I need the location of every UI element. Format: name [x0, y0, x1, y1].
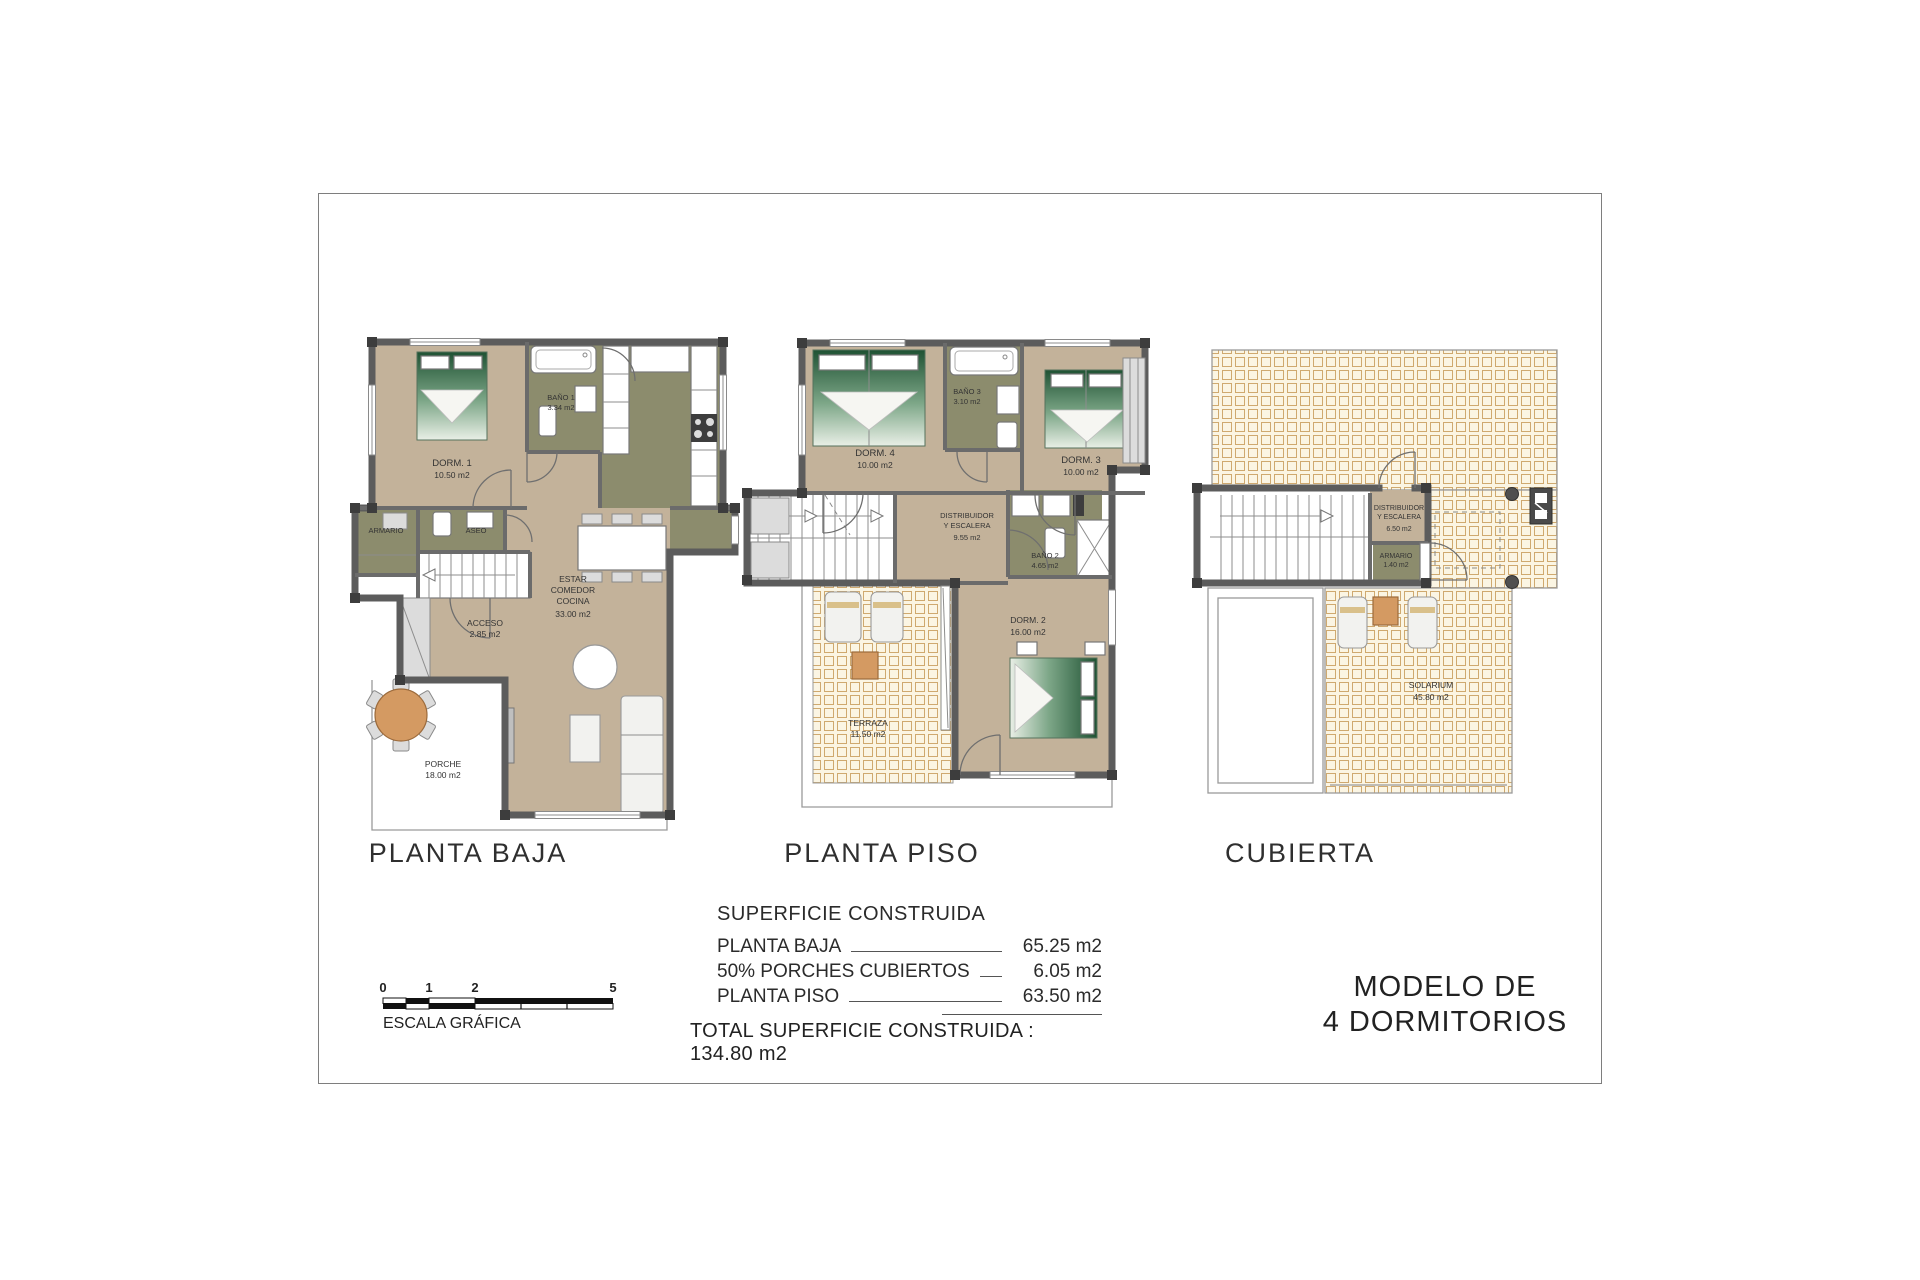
- plan-title-planta-piso: PLANTA PISO: [762, 838, 1002, 869]
- room-label-aseo: ASEO: [466, 526, 487, 535]
- surface-row-label: 50% PORCHES CUBIERTOS: [717, 961, 970, 983]
- side-table-icon: [852, 652, 878, 679]
- leader-line: [851, 950, 1002, 952]
- room-label-armario: ARMARIO: [368, 526, 403, 535]
- plan-cubierta: DISTRIBUIDOR Y ESCALERA 6.50 m2 ARMARIO …: [1195, 330, 1615, 850]
- sun-lounger: [1338, 597, 1367, 648]
- svg-text:6.50 m2: 6.50 m2: [1386, 526, 1411, 533]
- leader-line: [849, 1000, 1002, 1002]
- scale-tick-1: 1: [425, 980, 432, 995]
- vent-icon: [1506, 488, 1519, 501]
- svg-text:Y ESCALERA: Y ESCALERA: [944, 521, 991, 530]
- svg-text:COCINA: COCINA: [556, 596, 589, 606]
- surface-row-value: 6.05 m2: [1010, 961, 1102, 983]
- coffee-table: [570, 715, 600, 762]
- room-label-bano1: BAÑO 1: [547, 393, 575, 402]
- sofa: [621, 696, 663, 814]
- scale-tick-0: 0: [379, 980, 386, 995]
- svg-text:18.00 m2: 18.00 m2: [425, 770, 461, 780]
- svg-text:9.55 m2: 9.55 m2: [953, 533, 980, 542]
- bano1-sink: [575, 386, 596, 412]
- svg-text:1.40 m2: 1.40 m2: [1383, 562, 1408, 569]
- svg-text:3.34 m2: 3.34 m2: [547, 403, 574, 412]
- svg-text:4.65 m2: 4.65 m2: [1031, 561, 1058, 570]
- room-label-dorm2: DORM. 2: [1010, 615, 1046, 625]
- lounger-stripe: [827, 602, 859, 608]
- round-table-icon: [375, 689, 427, 741]
- plan-planta-baja: DORM. 1 10.50 m2 BAÑO 1 3.34 m2 ARMARIO …: [355, 330, 775, 850]
- room-label-armario: ARMARIO: [1380, 553, 1413, 560]
- surface-total: TOTAL SUPERFICIE CONSTRUIDA : 134.80 m2: [690, 1020, 1102, 1066]
- porch-table-set: [366, 679, 436, 751]
- svg-text:Y ESCALERA: Y ESCALERA: [1377, 514, 1421, 521]
- room-label-estar: ESTAR: [559, 574, 587, 584]
- floorplan-sheet: DORM. 1 10.50 m2 BAÑO 1 3.34 m2 ARMARIO …: [0, 0, 1920, 1280]
- svg-text:COMEDOR: COMEDOR: [551, 585, 595, 595]
- room-jog-floor: [670, 508, 735, 552]
- svg-text:3.10 m2: 3.10 m2: [953, 397, 980, 406]
- surface-table: SUPERFICIE CONSTRUIDA PLANTA BAJA 65.25 …: [690, 903, 1102, 1066]
- scale-tick-2: 2: [471, 980, 478, 995]
- dining-set: [578, 514, 666, 582]
- surface-row-value: 63.50 m2: [1010, 986, 1102, 1008]
- bedside-table: [1085, 642, 1105, 655]
- room-label-dorm1: DORM. 1: [432, 458, 472, 469]
- stove-icon: [691, 414, 717, 442]
- entry-steps: [400, 598, 430, 680]
- dorm1-bed: [417, 352, 487, 440]
- scale-tick-5: 5: [609, 980, 616, 995]
- svg-text:10.50 m2: 10.50 m2: [434, 470, 470, 480]
- room-label-dorm3: DORM. 3: [1061, 455, 1101, 466]
- svg-text:10.00 m2: 10.00 m2: [857, 460, 893, 470]
- plan-planta-piso: DORM. 4 10.00 m2 BAÑO 3 3.10 m2 DORM. 3 …: [745, 330, 1165, 850]
- side-table-icon: [1373, 597, 1398, 625]
- vent-icon: [1506, 576, 1519, 589]
- room-label-porche: PORCHE: [425, 759, 462, 769]
- bano2-sink: [1043, 495, 1070, 516]
- plan-title-cubierta: CUBIERTA: [1180, 838, 1420, 869]
- scale-label: ESCALA GRÁFICA: [383, 1013, 521, 1032]
- leader-line: [980, 975, 1002, 977]
- graphic-scale: 0 1 2 5 ESCALA GRÁFICA: [378, 980, 628, 1043]
- surface-row-value: 65.25 m2: [1010, 936, 1102, 958]
- scale-bar: [383, 998, 613, 1009]
- svg-text:2.85 m2: 2.85 m2: [470, 629, 501, 639]
- room-label-distribuidor: DISTRIBUIDOR: [1374, 505, 1424, 512]
- surface-row-label: PLANTA PISO: [717, 986, 839, 1008]
- sun-lounger: [871, 592, 903, 642]
- sun-lounger: [1408, 597, 1437, 648]
- room-label-dorm4: DORM. 4: [855, 448, 895, 459]
- surface-table-title: SUPERFICIE CONSTRUIDA: [717, 903, 1102, 926]
- sum-line: [942, 1014, 1102, 1015]
- armario-door-leaf: [1420, 543, 1430, 580]
- svg-text:11.50 m2: 11.50 m2: [851, 729, 886, 739]
- svg-text:10.00 m2: 10.00 m2: [1063, 467, 1099, 477]
- surface-row-porches: 50% PORCHES CUBIERTOS 6.05 m2: [717, 961, 1102, 986]
- round-rug: [573, 645, 617, 689]
- dorm4-bed: [813, 350, 925, 446]
- model-caption-line2: 4 DORMITORIOS: [1300, 1005, 1590, 1040]
- room-label-bano3: BAÑO 3: [953, 387, 981, 396]
- lower-roof-void: [1208, 588, 1323, 793]
- aseo-toilet: [433, 512, 451, 536]
- surface-row-label: PLANTA BAJA: [717, 936, 841, 958]
- plan-title-planta-baja: PLANTA BAJA: [348, 838, 588, 869]
- model-caption: MODELO DE 4 DORMITORIOS: [1300, 970, 1590, 1040]
- dorm3-bed: [1045, 370, 1127, 448]
- room-label-solarium: SOLARIUM: [1409, 680, 1453, 690]
- surface-row-planta-baja: PLANTA BAJA 65.25 m2: [717, 936, 1102, 961]
- room-label-bano2: BAÑO 2: [1031, 551, 1059, 560]
- svg-text:45.80 m2: 45.80 m2: [1413, 692, 1449, 702]
- distribuidor-floor: [895, 493, 1008, 583]
- room-label-terraza: TERRAZA: [848, 718, 888, 728]
- room-label-distribuidor: DISTRIBUIDOR: [940, 511, 994, 520]
- sun-lounger: [825, 592, 861, 642]
- room-label-acceso: ACCESO: [467, 618, 503, 628]
- svg-text:16.00 m2: 16.00 m2: [1010, 627, 1046, 637]
- bedside-table: [1017, 642, 1037, 655]
- chimney-icon: [1530, 488, 1552, 524]
- surface-row-planta-piso: PLANTA PISO 63.50 m2: [717, 986, 1102, 1011]
- model-caption-line1: MODELO DE: [1300, 970, 1590, 1005]
- bano3-toilet: [997, 422, 1017, 448]
- svg-text:33.00 m2: 33.00 m2: [555, 609, 591, 619]
- bano3-sink: [997, 386, 1019, 414]
